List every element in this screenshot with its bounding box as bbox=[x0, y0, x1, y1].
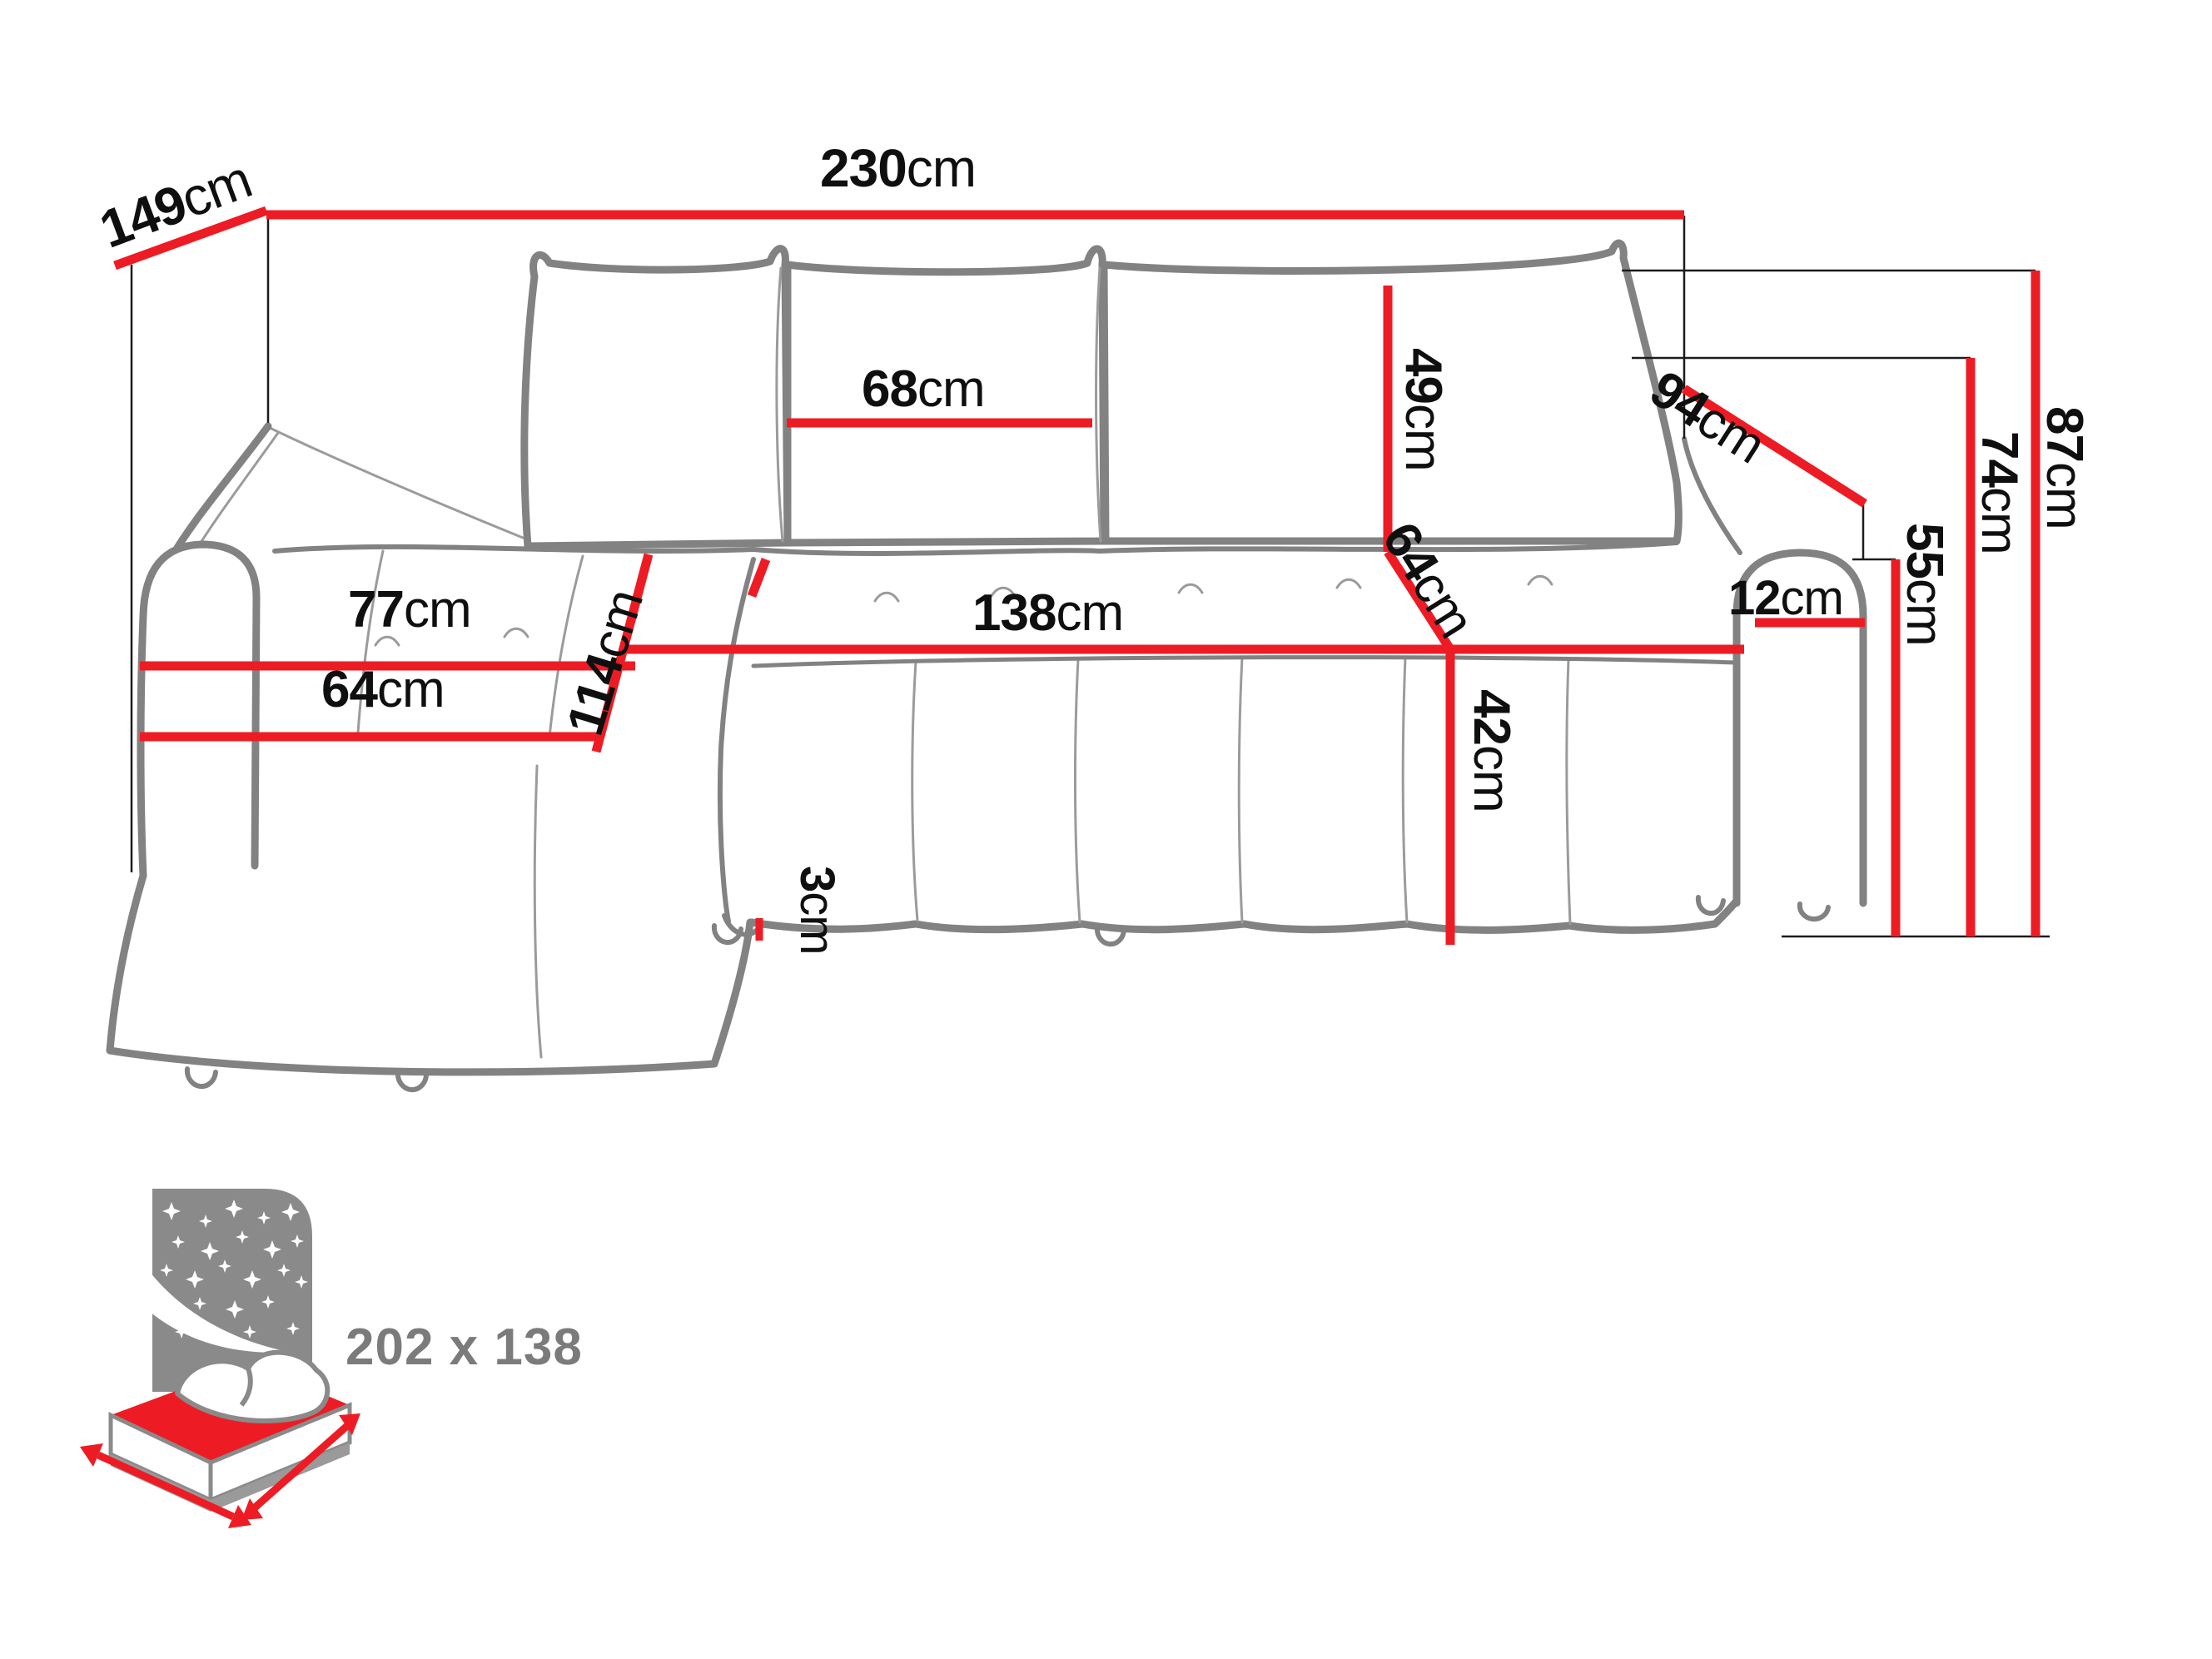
dim-value: 87 bbox=[2036, 406, 2093, 462]
chaise-seat-divider bbox=[720, 559, 753, 921]
dim-label-seat-front-width: 138cm bbox=[972, 588, 1123, 639]
back-cushion-left bbox=[524, 249, 788, 546]
dim-value: 77 bbox=[348, 581, 404, 638]
dim-unit: cm bbox=[2036, 462, 2093, 529]
dim-value: 64 bbox=[321, 661, 377, 718]
seat-seam-5 bbox=[1567, 659, 1570, 924]
dim-label-backrest-height: 74cm bbox=[1973, 431, 2025, 554]
seat-seam-3 bbox=[1239, 658, 1242, 922]
dim-unit: cm bbox=[1971, 487, 2028, 554]
dim-label-total-width: 230cm bbox=[820, 142, 976, 195]
dim-unit: cm bbox=[1394, 404, 1452, 471]
sofa-bed-icon bbox=[80, 1189, 360, 1528]
dim-label-back-cushion-height: 49cm bbox=[1397, 348, 1449, 471]
seat-seam-4 bbox=[1403, 658, 1407, 922]
dim-label-total-height: 87cm bbox=[2038, 406, 2090, 529]
dim-value: 230 bbox=[820, 138, 907, 198]
dim-unit: cm bbox=[1896, 579, 1953, 646]
sofa-dimension-drawing bbox=[0, 0, 2212, 1659]
dim-label-armrest-width: 12cm bbox=[1728, 574, 1843, 623]
diagram-canvas: 230cm 149cm 68cm 49cm 64cm 42cm 138cm 77… bbox=[0, 0, 2212, 1659]
dim-label-back-cushion-width: 68cm bbox=[862, 364, 985, 415]
dim-unit: cm bbox=[790, 892, 844, 954]
left-arm-top-edge bbox=[177, 426, 268, 548]
left-arm-front bbox=[141, 544, 256, 876]
seat-bottom-edge bbox=[752, 901, 1737, 930]
seat-front-fold bbox=[753, 658, 1736, 666]
dim-value: 138 bbox=[972, 584, 1056, 642]
dim-label-seat-height: 42cm bbox=[1465, 689, 1517, 812]
dim-value: 74 bbox=[1971, 431, 2028, 487]
chaise-outline bbox=[110, 876, 750, 1072]
sleeping-area-size: 202 x 138 bbox=[345, 1322, 583, 1373]
tuft-marks bbox=[375, 576, 1552, 645]
dim-unit: cm bbox=[1056, 584, 1123, 642]
dim-label-floor-gap: 3cm bbox=[793, 866, 841, 955]
chaise-front-seam bbox=[534, 766, 541, 1057]
dim-unit: cm bbox=[1781, 571, 1843, 625]
seat-seam-2 bbox=[1075, 659, 1080, 922]
dim-value: 42 bbox=[1463, 689, 1520, 745]
dim-label-chaise-seat-length: 77cm bbox=[348, 584, 471, 636]
seat-seam-1 bbox=[912, 662, 917, 921]
dim-value: 55 bbox=[1896, 523, 1953, 579]
dim-label-chaise-front-width: 64cm bbox=[321, 664, 445, 716]
dim-unit: cm bbox=[1463, 745, 1520, 812]
dim-unit: cm bbox=[404, 581, 471, 638]
dim-unit: cm bbox=[377, 661, 445, 718]
dim-unit: cm bbox=[907, 138, 976, 198]
left-arm-top-inner bbox=[196, 433, 278, 549]
dim-value: 68 bbox=[862, 360, 917, 418]
dim-unit: cm bbox=[917, 360, 985, 418]
dim-value: 12 bbox=[1728, 571, 1781, 625]
dim-label-armrest-height: 55cm bbox=[1898, 523, 1950, 646]
dim-value: 49 bbox=[1394, 348, 1452, 404]
back-left-band-line bbox=[270, 428, 523, 538]
dim-value: 3 bbox=[790, 866, 844, 892]
